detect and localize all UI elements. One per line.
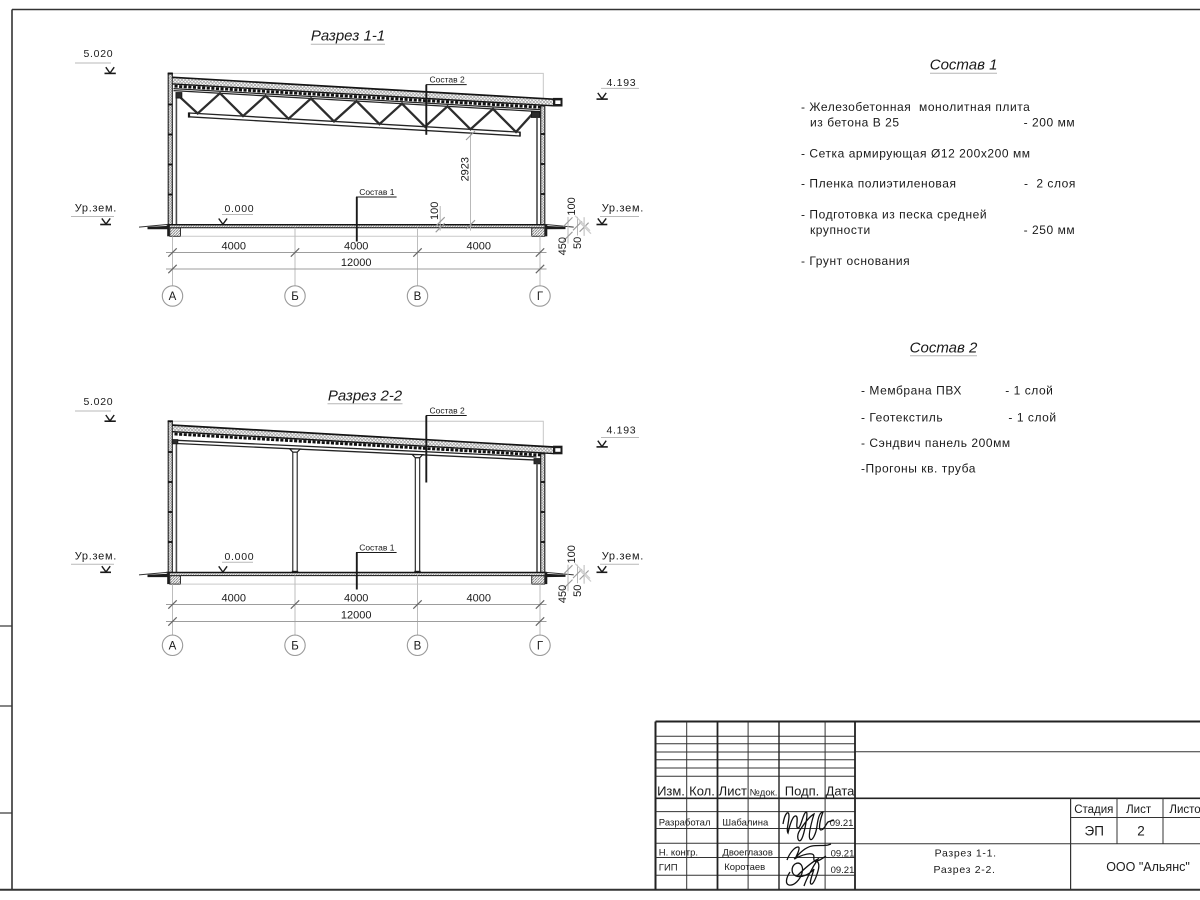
svg-text:Листов: Листов xyxy=(1169,804,1200,816)
svg-text:Дата: Дата xyxy=(826,784,856,799)
svg-text:из бетона В 25: из бетона В 25 xyxy=(810,116,900,130)
svg-text:Ур.зем.: Ур.зем. xyxy=(75,203,117,215)
svg-text:Кол.: Кол. xyxy=(689,784,715,799)
svg-text:450: 450 xyxy=(557,237,569,255)
svg-text:Разработал: Разработал xyxy=(659,817,711,828)
svg-text:-Прогоны кв. труба: -Прогоны кв. труба xyxy=(861,462,976,476)
svg-text:Состав 2: Состав 2 xyxy=(910,339,978,356)
svg-text:- Железобетонная монолитная п: - Железобетонная монолитная плита xyxy=(801,100,1030,114)
svg-text:Состав 2: Состав 2 xyxy=(430,406,466,416)
svg-text:А: А xyxy=(169,291,177,303)
svg-text:4000: 4000 xyxy=(222,241,246,253)
svg-text:Разрез 1-1.: Разрез 1-1. xyxy=(935,847,997,859)
svg-text:5.020: 5.020 xyxy=(84,48,114,60)
svg-text:№док.: №док. xyxy=(750,787,778,798)
svg-text:100: 100 xyxy=(566,197,578,215)
svg-text:Разрез 2-2.: Разрез 2-2. xyxy=(934,864,996,876)
svg-text:Состав 1: Состав 1 xyxy=(359,543,395,553)
svg-text:В: В xyxy=(414,640,422,652)
svg-text:4.193: 4.193 xyxy=(607,77,637,89)
svg-text:4.193: 4.193 xyxy=(607,425,637,437)
svg-text:- Пленка полиэтиленовая: - Пленка полиэтиленовая xyxy=(801,177,957,191)
svg-text:2923: 2923 xyxy=(459,157,471,181)
svg-text:Двоеглазов: Двоеглазов xyxy=(722,848,773,859)
svg-text:Г: Г xyxy=(537,640,544,652)
svg-text:Г: Г xyxy=(537,291,544,303)
svg-text:Ур.зем.: Ур.зем. xyxy=(75,551,117,563)
svg-text:крупности: крупности xyxy=(810,223,871,237)
svg-text:- 1 слой: - 1 слой xyxy=(1008,411,1056,425)
svg-text:Ур.зем.: Ур.зем. xyxy=(602,203,644,215)
svg-text:Стадия: Стадия xyxy=(1074,804,1113,816)
svg-text:4000: 4000 xyxy=(467,593,491,605)
svg-text:- 250 мм: - 250 мм xyxy=(1024,223,1076,237)
svg-text:50: 50 xyxy=(572,237,584,249)
svg-text:Разрез 1-1: Разрез 1-1 xyxy=(311,28,385,45)
svg-text:09.21: 09.21 xyxy=(831,848,855,859)
svg-text:Состав 2: Состав 2 xyxy=(430,75,466,85)
svg-text:Подп.: Подп. xyxy=(785,784,820,799)
svg-text:Лист: Лист xyxy=(719,784,747,799)
svg-text:Состав 1: Состав 1 xyxy=(359,187,395,197)
svg-text:Коротаев: Коротаев xyxy=(724,862,765,873)
svg-text:5.020: 5.020 xyxy=(84,396,114,408)
svg-text:ГИП: ГИП xyxy=(659,862,678,873)
svg-text:- 1 слой: - 1 слой xyxy=(1005,384,1053,398)
svg-text:- Грунт основания: - Грунт основания xyxy=(801,254,910,268)
svg-text:Б: Б xyxy=(291,291,299,303)
svg-text:Шабалина: Шабалина xyxy=(722,817,769,828)
svg-text:4000: 4000 xyxy=(222,593,246,605)
svg-text:09.21: 09.21 xyxy=(831,865,855,876)
svg-text:Ур.зем.: Ур.зем. xyxy=(602,551,644,563)
svg-text:- Сэндвич панель 200мм: - Сэндвич панель 200мм xyxy=(861,436,1011,450)
svg-text:- 2 слоя: - 2 слоя xyxy=(1024,177,1076,191)
svg-text:А: А xyxy=(169,640,177,652)
svg-text:ЭП: ЭП xyxy=(1084,824,1103,839)
svg-text:4000: 4000 xyxy=(467,241,491,253)
svg-text:Состав 1: Состав 1 xyxy=(930,57,998,74)
svg-text:Н. контр.: Н. контр. xyxy=(659,848,698,859)
svg-text:ООО "Альянс": ООО "Альянс" xyxy=(1106,860,1190,874)
svg-text:4000: 4000 xyxy=(344,593,368,605)
svg-text:- Мембрана ПВХ: - Мембрана ПВХ xyxy=(861,384,962,398)
svg-text:12000: 12000 xyxy=(341,610,372,622)
svg-text:4000: 4000 xyxy=(344,241,368,253)
svg-text:Разрез 2-2: Разрез 2-2 xyxy=(328,387,403,404)
svg-text:- Подготовка из песка средней: - Подготовка из песка средней xyxy=(801,208,987,222)
svg-text:100: 100 xyxy=(429,202,441,220)
svg-text:0.000: 0.000 xyxy=(225,551,255,563)
svg-text:Изм.: Изм. xyxy=(657,784,685,799)
svg-text:450: 450 xyxy=(557,585,569,603)
svg-text:Лист: Лист xyxy=(1126,804,1152,816)
svg-text:0.000: 0.000 xyxy=(225,203,255,215)
svg-text:- Геотекстиль: - Геотекстиль xyxy=(861,411,943,425)
svg-text:50: 50 xyxy=(572,585,584,597)
svg-text:100: 100 xyxy=(566,545,578,563)
svg-text:- 200 мм: - 200 мм xyxy=(1024,116,1076,130)
svg-text:12000: 12000 xyxy=(341,257,372,269)
svg-text:В: В xyxy=(414,291,422,303)
svg-text:Б: Б xyxy=(291,640,299,652)
svg-text:- Сетка армирующая Ø12 200х200: - Сетка армирующая Ø12 200х200 мм xyxy=(801,147,1031,161)
svg-text:2: 2 xyxy=(1137,824,1145,839)
